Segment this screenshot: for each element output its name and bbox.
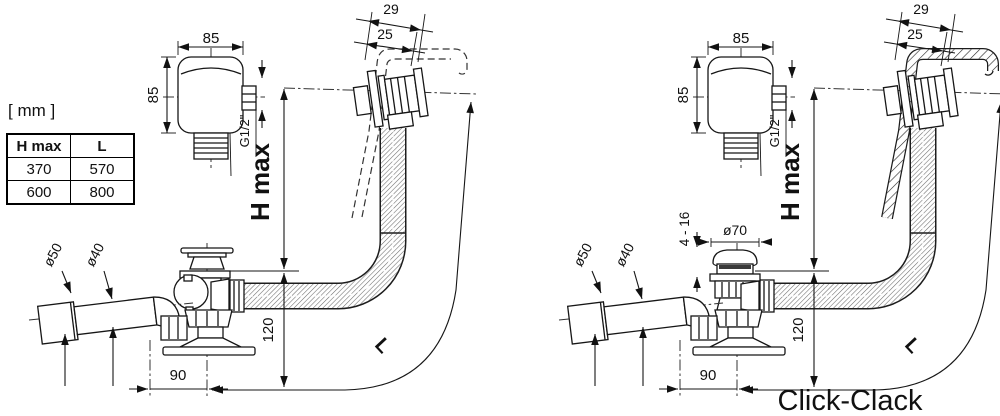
dim-label: ø40 — [82, 240, 108, 269]
dim-label: 25 — [377, 26, 393, 42]
control-cable — [230, 133, 231, 176]
drain-nut — [185, 310, 232, 327]
dim-rim: 29 25 — [354, 1, 433, 66]
dim-overflow-height: 85 — [145, 57, 176, 133]
diagram-click-clack-waste: 85 85 G1/2" 29 25 — [545, 0, 1000, 416]
dim-label: 90 — [170, 367, 187, 384]
plug-cap — [181, 248, 233, 253]
outlet-sleeve — [568, 302, 608, 344]
dim-plug-travel: 4 - 16 — [677, 212, 697, 292]
variant-label: Click-Clack — [778, 385, 924, 416]
diagram-standard-waste: 85 85 G1/2" 29 25 — [15, 0, 485, 416]
elbow-nut — [161, 316, 187, 340]
outlet-pipe — [559, 289, 723, 348]
dim-label: H max — [245, 142, 275, 221]
dim-label: 85 — [733, 30, 750, 47]
dim-label: 85 — [675, 87, 692, 104]
outlet-sleeve — [38, 302, 78, 344]
dim-label: L — [370, 334, 394, 358]
dim-label: G1/2" — [767, 114, 782, 147]
dim-label: 85 — [145, 87, 162, 104]
drain-base-flange — [693, 347, 785, 355]
dim-label: ø40 — [612, 240, 638, 269]
dim-label: ø70 — [723, 222, 747, 238]
dim-label: H max — [775, 142, 805, 221]
drain-base-flange — [163, 347, 255, 355]
technical-drawing-sheet: [ mm ] H max L 370 570 600 800 — [0, 0, 1000, 416]
dim-overflow-height: 85 — [675, 57, 706, 133]
dim-label: ø50 — [570, 240, 596, 269]
dim-label: 120 — [260, 317, 277, 342]
dim-plug-diameter: ø70 — [699, 222, 771, 247]
dim-label: L — [900, 334, 924, 358]
dim-label: 120 — [790, 317, 807, 342]
control-cable — [760, 133, 761, 176]
dim-label: 25 — [907, 26, 923, 42]
dim-label: 4 - 16 — [677, 212, 692, 247]
dim-label: 90 — [700, 367, 717, 384]
dim-label: ø50 — [40, 240, 66, 269]
dim-label: 85 — [203, 30, 220, 47]
drain-nut — [715, 310, 762, 327]
dim-label: 29 — [383, 1, 399, 17]
elbow-nut — [691, 316, 717, 340]
outlet-pipe — [29, 289, 193, 348]
overflow-elbow-assembly — [351, 64, 429, 133]
overflow-elbow-assembly — [881, 64, 959, 133]
dim-label: G1/2" — [237, 114, 252, 147]
dim-label: 29 — [913, 1, 929, 17]
